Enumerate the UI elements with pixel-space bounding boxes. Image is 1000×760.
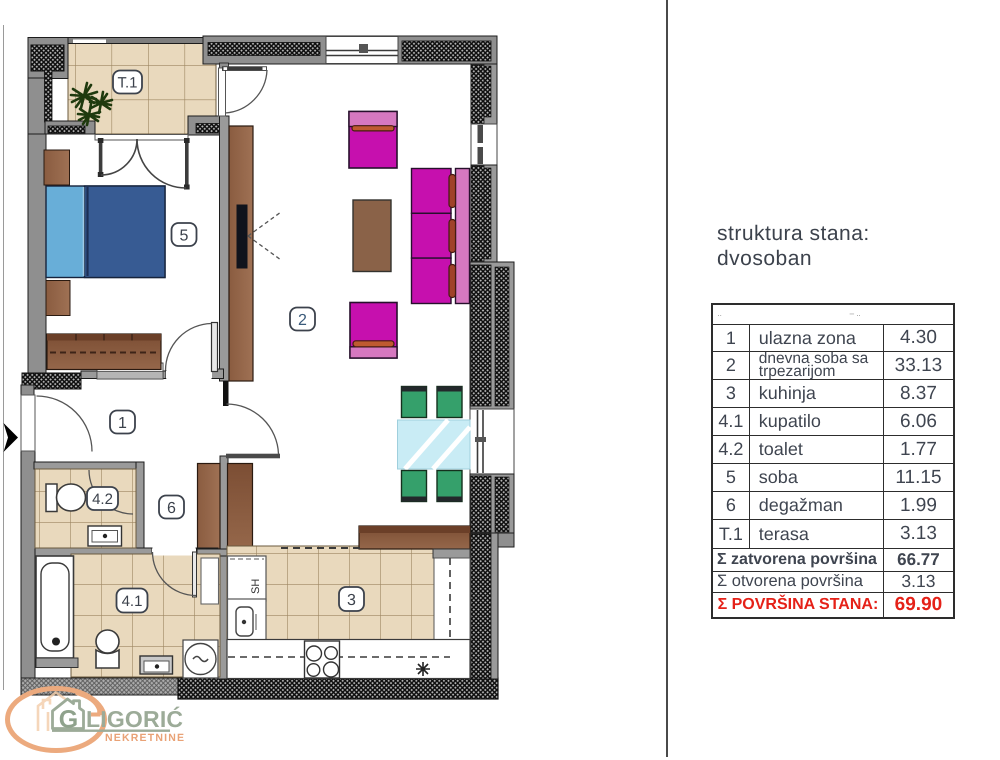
svg-text:SH: SH [250,579,262,594]
svg-text:G: G [59,706,78,734]
svg-text:2: 2 [298,312,307,329]
svg-text:3: 3 [347,592,356,609]
svg-text:T.1: T.1 [117,75,137,92]
svg-text:1: 1 [118,415,127,432]
svg-text:6: 6 [167,500,176,517]
svg-text:4.2: 4.2 [92,491,113,508]
svg-text:LIGORIĆ: LIGORIĆ [86,706,183,732]
svg-text:4.1: 4.1 [122,593,143,610]
svg-text:5: 5 [180,228,189,245]
svg-text:NEKRETNINE: NEKRETNINE [105,732,185,744]
